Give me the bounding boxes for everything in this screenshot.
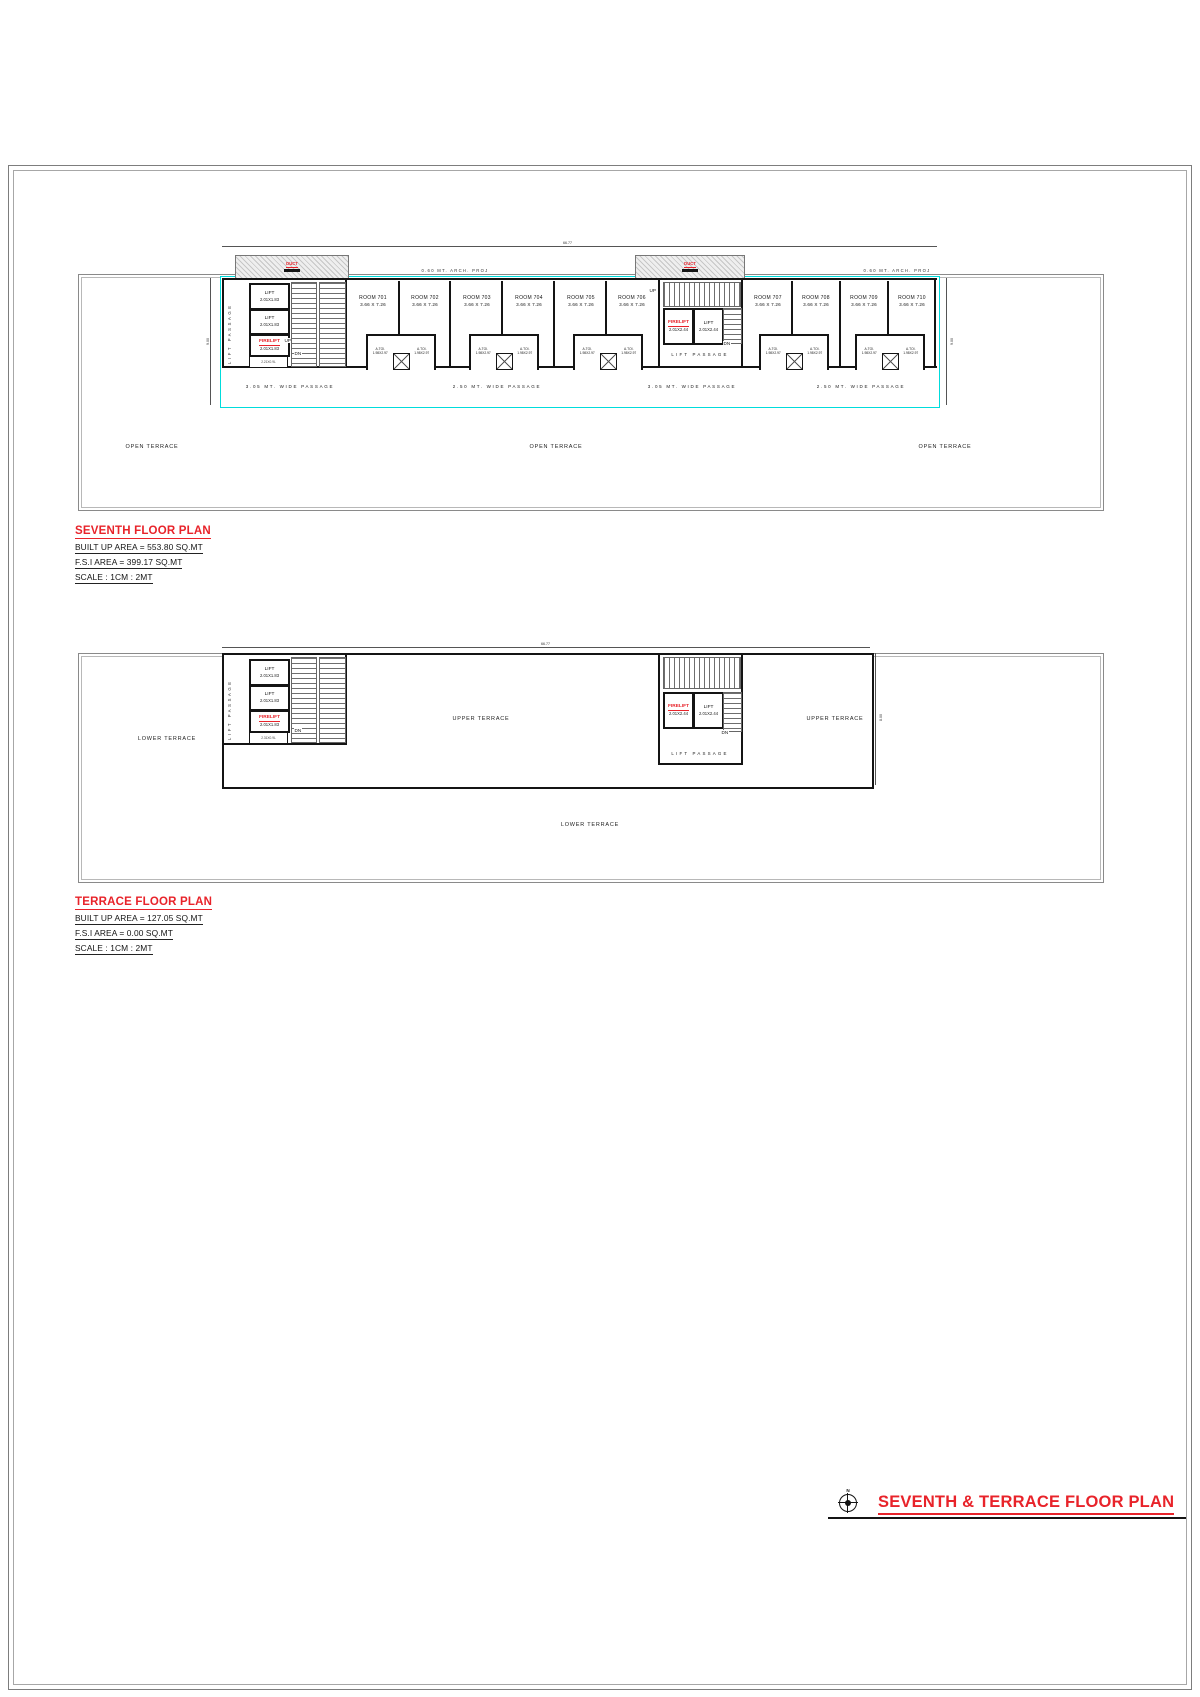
terrace-floor-plan: 66.77 LIFT PASSAGE LIFT 2.01X1.83 LIFT 2… bbox=[0, 600, 1200, 1000]
toilet-cell: A.TOI.1.98X2.97 bbox=[617, 336, 642, 370]
firelift-shaft: FIRELIFT 2.01X2.44 bbox=[663, 308, 694, 345]
terrace-plan-heading-block: TERRACE FLOOR PLAN BUILT UP AREA = 127.0… bbox=[75, 896, 212, 955]
core-bottom-wall bbox=[658, 763, 743, 765]
firelift-dim: 2.01X2.44 bbox=[669, 327, 688, 333]
hatch-bar bbox=[682, 269, 698, 272]
lift-shaft: LIFT 2.01X1.83 bbox=[249, 283, 290, 310]
room-label: ROOM 7093.66 X 7.26 bbox=[850, 295, 878, 308]
dimension-line-side bbox=[946, 278, 947, 405]
toilet-cell: A.TOI.1.98X2.97 bbox=[410, 336, 435, 370]
hatch-label: DUCT bbox=[684, 262, 696, 268]
seventh-plan-heading-block: SEVENTH FLOOR PLAN BUILT UP AREA = 553.8… bbox=[75, 525, 211, 584]
duct-shaft-icon bbox=[882, 353, 899, 370]
room-label: ROOM 7043.66 X 7.26 bbox=[515, 295, 543, 308]
plan-title: SEVENTH FLOOR PLAN bbox=[75, 525, 211, 539]
room-divider bbox=[449, 281, 451, 366]
dimension-line-side bbox=[875, 653, 876, 785]
wall-top bbox=[222, 278, 937, 280]
firelift-dim: 2.01X1.83 bbox=[260, 346, 279, 352]
toilet-cluster: A.TOI.1.98X2.97 A.TOI.1.98X2.97 bbox=[759, 334, 829, 370]
lower-terrace-label: LOWER TERRACE bbox=[138, 736, 196, 742]
scale-note: SCALE : 1CM : 2MT bbox=[75, 943, 153, 955]
duct-shaft-icon bbox=[496, 353, 513, 370]
hatch-block-center: DUCT bbox=[635, 255, 745, 279]
fsi-area: F.S.I AREA = 0.00 SQ.MT bbox=[75, 928, 173, 940]
room-label: ROOM 7073.66 X 7.26 bbox=[754, 295, 782, 308]
upper-terrace-label: UPPER TERRACE bbox=[806, 716, 863, 722]
firelift-label: FIRELIFT bbox=[668, 320, 689, 327]
toilet-cell: A.TOI.1.98X2.97 bbox=[513, 336, 538, 370]
toilet-cell: A.TOI.1.98X2.97 bbox=[471, 336, 496, 370]
lift-passage-label-vertical: LIFT PASSAGE bbox=[227, 284, 232, 364]
toilet-cell: A.TOI.1.98X2.97 bbox=[899, 336, 924, 370]
passage-label: 2.50 MT. WIDE PASSAGE bbox=[453, 384, 541, 389]
seventh-floor-plan: 66.77 DUCT DUCT 0.60 MT. ARCH. PROJ 0.60… bbox=[0, 0, 1200, 600]
room-divider bbox=[553, 281, 555, 366]
stairs bbox=[319, 657, 346, 743]
stairs bbox=[663, 657, 741, 689]
room-label: ROOM 7103.66 X 7.26 bbox=[898, 295, 926, 308]
upper-terrace-label: UPPER TERRACE bbox=[452, 716, 509, 722]
north-compass-icon: N bbox=[838, 1488, 858, 1515]
hatch-bar bbox=[284, 269, 300, 272]
core-wall bbox=[658, 278, 660, 368]
room-label: ROOM 7013.66 X 7.26 bbox=[359, 295, 387, 308]
lift-dim: 2.01X2.44 bbox=[699, 327, 718, 333]
duct-box: 2.21X0.9L bbox=[249, 356, 288, 368]
dimension-line-side bbox=[210, 278, 211, 405]
lift-dim: 2.01X1.83 bbox=[260, 698, 279, 704]
plan-title: TERRACE FLOOR PLAN bbox=[75, 896, 212, 910]
toilet-cluster: A.TOI.1.98X2.97 A.TOI.1.98X2.97 bbox=[855, 334, 925, 370]
lift-dim: 2.01X1.83 bbox=[260, 673, 279, 679]
wall-right bbox=[934, 278, 936, 368]
dimension-label-side: 8.00 bbox=[879, 713, 883, 722]
arch-proj-label: 0.60 MT. ARCH. PROJ bbox=[861, 268, 932, 273]
core-wall bbox=[658, 653, 660, 765]
stairs-dn-label: DN bbox=[294, 351, 302, 356]
lift-passage-label-vertical: LIFT PASSAGE bbox=[227, 660, 232, 740]
firelift-label: FIRELIFT bbox=[259, 339, 280, 346]
built-up-area: BUILT UP AREA = 127.05 SQ.MT bbox=[75, 913, 203, 925]
lower-terrace-label: LOWER TERRACE bbox=[561, 822, 619, 828]
toilet-cell: A.TOI.1.98X2.97 bbox=[761, 336, 786, 370]
toilet-cell: A.TOI.1.98X2.97 bbox=[575, 336, 600, 370]
wall-left bbox=[222, 278, 224, 368]
room-divider bbox=[839, 281, 841, 366]
scale-note: SCALE : 1CM : 2MT bbox=[75, 572, 153, 584]
title-rule bbox=[828, 1517, 1186, 1519]
hatch-block-left: DUCT bbox=[235, 255, 349, 279]
lift-passage-label: LIFT PASSAGE bbox=[671, 751, 728, 756]
toilet-cell: A.TOI.1.98X2.97 bbox=[368, 336, 393, 370]
duct-box-label: 2.21X0.9L bbox=[261, 360, 276, 364]
duct-box-label: 2.31X0.9L bbox=[261, 736, 276, 740]
room-label: ROOM 7023.66 X 7.26 bbox=[411, 295, 439, 308]
lift-shaft: LIFT 2.01X1.83 bbox=[249, 309, 290, 335]
lift-dim: 2.01X1.83 bbox=[260, 322, 279, 328]
stairs bbox=[319, 282, 346, 367]
open-terrace-label: OPEN TERRACE bbox=[530, 444, 583, 450]
arch-proj-label: 0.60 MT. ARCH. PROJ bbox=[419, 268, 490, 273]
toilet-cluster: A.TOI.1.98X2.97 A.TOI.1.98X2.97 bbox=[366, 334, 436, 370]
toilet-cluster: A.TOI.1.98X2.97 A.TOI.1.98X2.97 bbox=[573, 334, 643, 370]
stairs bbox=[723, 692, 742, 732]
lift-dim: 2.01X2.44 bbox=[699, 711, 718, 717]
duct-shaft-icon bbox=[600, 353, 617, 370]
open-terrace-label: OPEN TERRACE bbox=[919, 444, 972, 450]
dimension-label-top: 66.77 bbox=[562, 241, 573, 245]
hatch-label: DUCT bbox=[286, 262, 298, 268]
duct-shaft-icon bbox=[393, 353, 410, 370]
dimension-line-top bbox=[222, 647, 870, 648]
firelift-dim: 2.01X1.83 bbox=[260, 722, 279, 728]
passage-label: 3.05 MT. WIDE PASSAGE bbox=[246, 384, 334, 389]
stairs-dn-label: DN bbox=[723, 341, 731, 346]
room-label: ROOM 7063.66 X 7.26 bbox=[618, 295, 646, 308]
stairs-dn-label: DN bbox=[721, 730, 729, 735]
lift-passage-label: LIFT PASSAGE bbox=[671, 352, 728, 357]
firelift-shaft: FIRELIFT 2.01X2.44 bbox=[663, 692, 694, 729]
dimension-line-top bbox=[222, 246, 937, 247]
toilet-cell: A.TOI.1.98X2.97 bbox=[857, 336, 882, 370]
duct-shaft-icon bbox=[786, 353, 803, 370]
stairs-up-label: UP bbox=[649, 288, 656, 293]
stairs bbox=[723, 308, 742, 344]
room-label: ROOM 7053.66 X 7.26 bbox=[567, 295, 595, 308]
stairs-up-label: UP bbox=[284, 338, 291, 343]
fsi-area: F.S.I AREA = 399.17 SQ.MT bbox=[75, 557, 182, 569]
lift-shaft: LIFT 2.01X2.44 bbox=[693, 308, 724, 345]
firelift-dim: 2.01X2.44 bbox=[669, 711, 688, 717]
built-up-area: BUILT UP AREA = 553.80 SQ.MT bbox=[75, 542, 203, 554]
stairs bbox=[663, 282, 741, 307]
toilet-cell: A.TOI.1.98X2.97 bbox=[803, 336, 828, 370]
passage-label: 2.50 MT. WIDE PASSAGE bbox=[817, 384, 905, 389]
toilet-cluster: A.TOI.1.98X2.97 A.TOI.1.98X2.97 bbox=[469, 334, 539, 370]
firelift-label: FIRELIFT bbox=[668, 704, 689, 711]
sheet-title: SEVENTH & TERRACE FLOOR PLAN bbox=[878, 1493, 1174, 1515]
open-terrace-label: OPEN TERRACE bbox=[126, 444, 179, 450]
room-label: ROOM 7083.66 X 7.26 bbox=[802, 295, 830, 308]
lift-shaft: LIFT 2.01X1.83 bbox=[249, 659, 290, 686]
floor-plan-sheet: 66.77 DUCT DUCT 0.60 MT. ARCH. PROJ 0.60… bbox=[0, 0, 1200, 1697]
lift-shaft: LIFT 2.01X2.44 bbox=[693, 692, 724, 729]
firelift-label: FIRELIFT bbox=[259, 715, 280, 722]
stairs-dn-label: DN bbox=[294, 728, 302, 733]
dimension-label-top: 66.77 bbox=[540, 642, 551, 646]
firelift-shaft: FIRELIFT 2.01X1.83 bbox=[249, 710, 290, 733]
dimension-label-side: 9.00 bbox=[950, 337, 954, 346]
compass-crosshair-v bbox=[847, 1493, 848, 1513]
dimension-label-side: 9.00 bbox=[206, 337, 210, 346]
room-label: ROOM 7033.66 X 7.26 bbox=[463, 295, 491, 308]
lift-dim: 2.01X1.83 bbox=[260, 297, 279, 303]
duct-box: 2.31X0.9L bbox=[249, 732, 288, 744]
passage-label: 3.05 MT. WIDE PASSAGE bbox=[648, 384, 736, 389]
lift-shaft: LIFT 2.01X1.83 bbox=[249, 685, 290, 711]
